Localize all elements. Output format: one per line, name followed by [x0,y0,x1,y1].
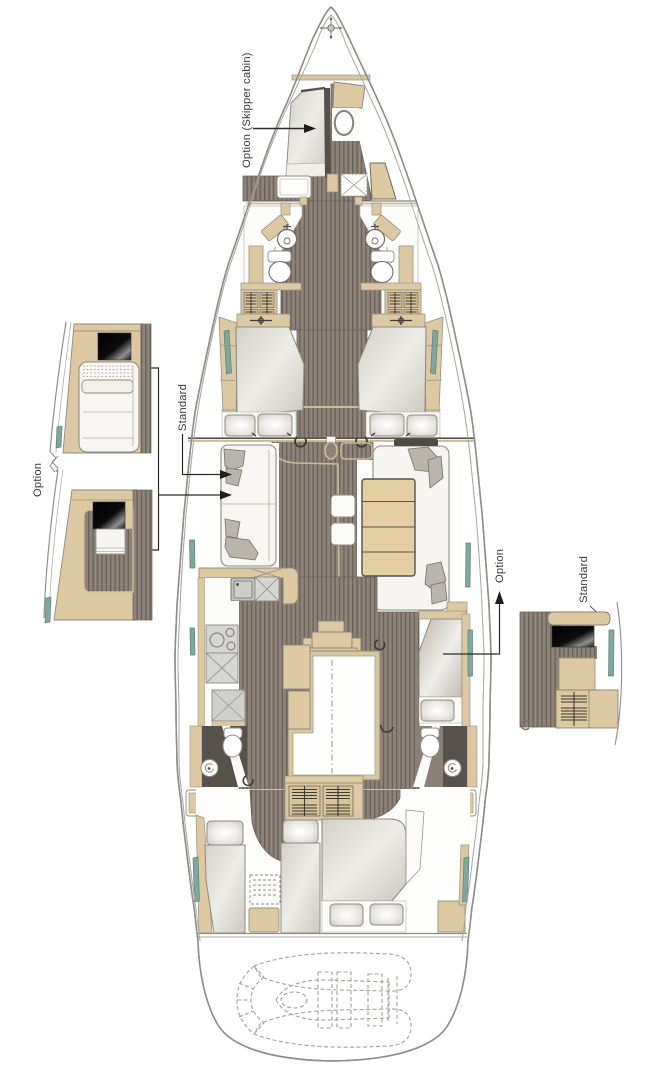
svg-text:Option: Option [32,463,44,497]
svg-text:Standard: Standard [177,384,189,431]
svg-text:Option: Option [494,549,506,583]
svg-text:Standard: Standard [578,556,590,603]
svg-text:Option (Skipper cabin): Option (Skipper cabin) [241,52,253,168]
